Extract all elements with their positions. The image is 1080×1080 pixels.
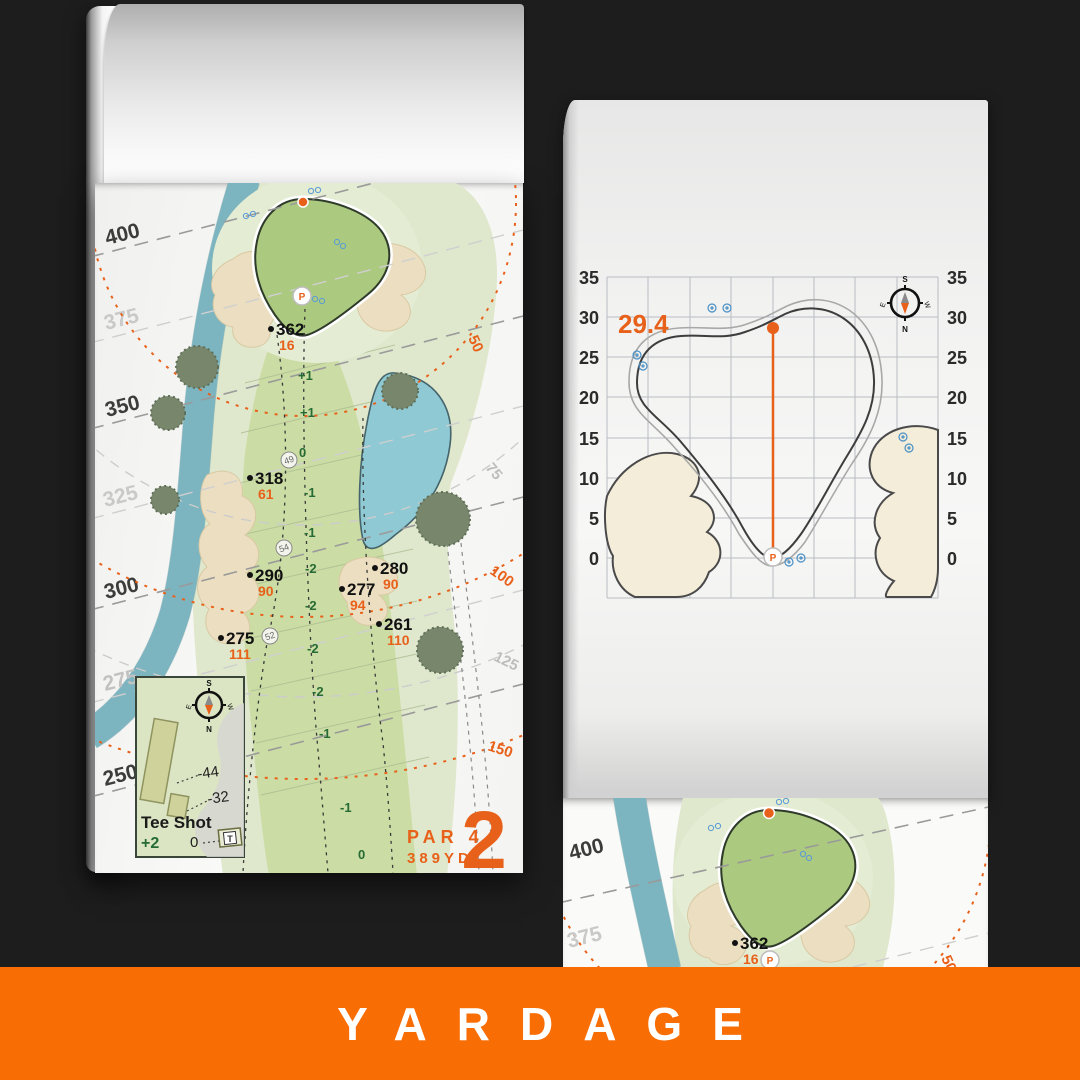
arc-label-100: 100 [487,562,517,590]
chart-bunker-right [870,426,938,597]
inset-dist-back: -44 [196,763,220,783]
marker-pin-dist: 61 [258,486,274,502]
tick-15-r: 15 [947,429,967,449]
inset-title: Tee Shot [141,813,212,832]
marker-pin-dist: 94 [350,597,366,613]
footer-title: YARDAGE [307,997,773,1051]
green-chart: P 29.4 35 30 25 20 15 10 5 0 35 30 25 20… [563,100,988,798]
chart-bunkers [605,426,938,597]
preview-label-400: 400 [567,834,607,865]
chart-front-letter: P [770,553,777,564]
elev-10: -1 [340,800,352,815]
axis-ticks-left: 35 30 25 20 15 10 5 0 [579,268,599,569]
elev-1: +1 [300,405,315,420]
inset-tee-marker: T [218,828,242,847]
pin-dot [298,197,308,207]
chart-compass-s: S [902,275,908,284]
tee-shot-inset: -44 -32 0 T Tee Shot +2 S N E W [136,677,244,857]
tick-30-r: 30 [947,308,967,328]
arc-label-125: 125 [491,648,521,674]
chart-compass: S N E W [879,275,931,334]
preview-front-letter: P [767,956,774,967]
elev-2: 0 [299,445,306,460]
preview-map: P 400 375 50 362 16 [563,798,988,967]
marker-pin-dist: 110 [387,632,410,648]
right-book-page-edge [563,100,579,798]
next-hole-preview-page: P 400 375 50 362 16 [563,798,988,967]
left-book-flipped-page [104,4,524,183]
distance-label-375: 375 [102,304,142,335]
green-depth-value: 29.4 [618,309,669,339]
distance-label-300: 300 [102,573,142,604]
tick-20-r: 20 [947,388,967,408]
distance-label-250: 250 [101,760,141,791]
inset-dist-mid: -32 [206,788,230,808]
tick-20-l: 20 [579,388,599,408]
tick-0-r: 0 [947,549,957,569]
elev-6: -2 [305,598,317,613]
pin-depth-indicator: P [764,322,782,566]
hole-map-page: 400 375 350 325 300 275 250 50 75 100 12… [95,183,523,873]
chart-compass-w: W [922,301,931,310]
tick-10-r: 10 [947,469,967,489]
elev-8: -2 [312,684,324,699]
tick-30-l: 30 [579,308,599,328]
preview-river-bank [629,798,665,967]
tick-25-r: 25 [947,348,967,368]
green-chart-page: P 29.4 35 30 25 20 15 10 5 0 35 30 25 20… [563,100,988,798]
footer-banner: YARDAGE [0,967,1080,1080]
elev-3: -1 [304,485,316,500]
tick-35-l: 35 [579,268,599,288]
tick-35-r: 35 [947,268,967,288]
compass-n: N [206,725,212,734]
compass-s: S [206,679,212,688]
elev-5: -2 [305,561,317,576]
tick-25-l: 25 [579,348,599,368]
chart-compass-e: E [879,301,887,308]
arc-label-75: 75 [482,460,506,484]
tee-letter: T [227,834,233,844]
marker-pin-dist: 90 [383,576,399,592]
elev-0: +1 [298,368,313,383]
hole-map: 400 375 350 325 300 275 250 50 75 100 12… [95,183,523,873]
tick-10-l: 10 [579,469,599,489]
front-of-green-marker: P [293,287,311,305]
chart-compass-n: N [902,325,908,334]
axis-ticks-right: 35 30 25 20 15 10 5 0 [947,268,967,569]
elev-9: -1 [319,726,331,741]
hole-number: 2 [461,795,507,873]
elev-11: 0 [358,847,365,862]
marker-pin-dist: 111 [229,646,251,662]
preview-front-marker: P [761,951,779,967]
tick-0-l: 0 [589,549,599,569]
inset-shots: +2 [141,835,159,852]
front-marker-letter: P [299,292,306,303]
marker-pin-dist: 90 [258,583,274,599]
elev-4: -1 [304,525,316,540]
preview-label-375: 375 [565,922,605,953]
inset-dist-front: 0 [190,834,198,851]
tick-5-r: 5 [947,509,957,529]
preview-pin-dot [764,808,775,819]
chart-bunker-left [605,453,720,597]
tick-15-l: 15 [579,429,599,449]
tick-5-l: 5 [589,509,599,529]
elev-7: -2 [307,641,319,656]
marker-pin-dist: 16 [279,337,295,353]
preview-marker-pin: 16 [743,951,759,967]
